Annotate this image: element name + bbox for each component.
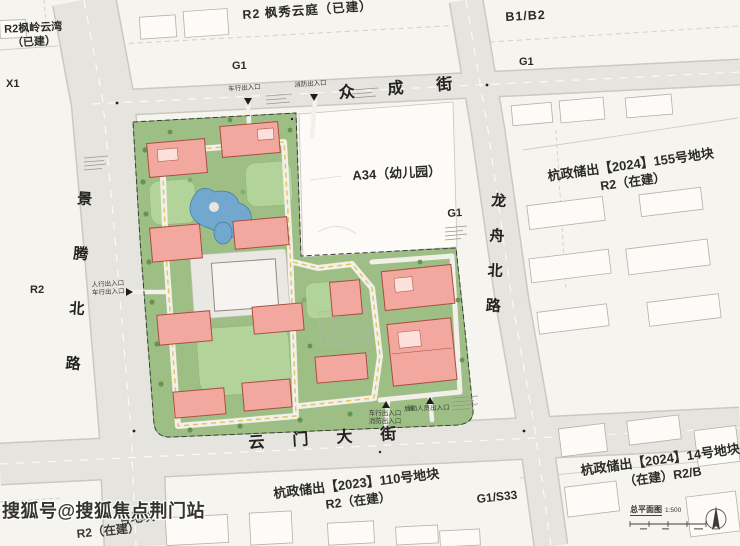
site-area [130,100,473,437]
building [242,379,292,411]
entrance-line1: 车行出入口 [369,410,402,417]
entrance-label-south-service: 后勤人员出入口 [404,404,450,413]
legend: 总平面图1:500 [630,505,681,515]
entrance-label-west: 人行出入口 车行出入口 [86,280,125,298]
building [150,224,203,262]
site-plan-map: R2枫岭云湾 （已建） X1 R2 枫秀云庭（已建） G1 B1/B2 G1 R… [0,0,740,546]
building [252,303,304,334]
building [173,388,226,418]
entrance-line2: 消防出入口 [369,418,402,425]
building [315,353,368,383]
building [157,311,212,346]
watermark: 搜狐号@搜狐焦点荆门站 [2,497,205,523]
plot-label-g1-east: G1 [447,207,463,222]
plot-status: （已建） [12,35,57,49]
plot-label-west: R2 [30,284,44,298]
plot-label-g1-northeast: G1 [519,56,534,70]
building [220,122,280,158]
building [381,264,455,310]
legend-scale: 1:500 [665,507,681,514]
plot-name: R2枫岭云湾 [4,21,63,36]
building [233,217,289,250]
plot-label-x1: X1 [6,78,19,92]
entrance-line2: 车行出入口 [92,288,125,297]
building [387,318,457,386]
plot-label-g1-north: G1 [232,60,247,74]
legend-title: 总平面图 [630,505,662,516]
plot-label-northeast: B1/B2 [505,8,546,26]
building [330,280,363,316]
plot-label-northwest: R2枫岭云湾 （已建） [0,21,67,52]
entrance-label-south-vehicle: 车行出入口 消防出入口 [366,410,404,426]
